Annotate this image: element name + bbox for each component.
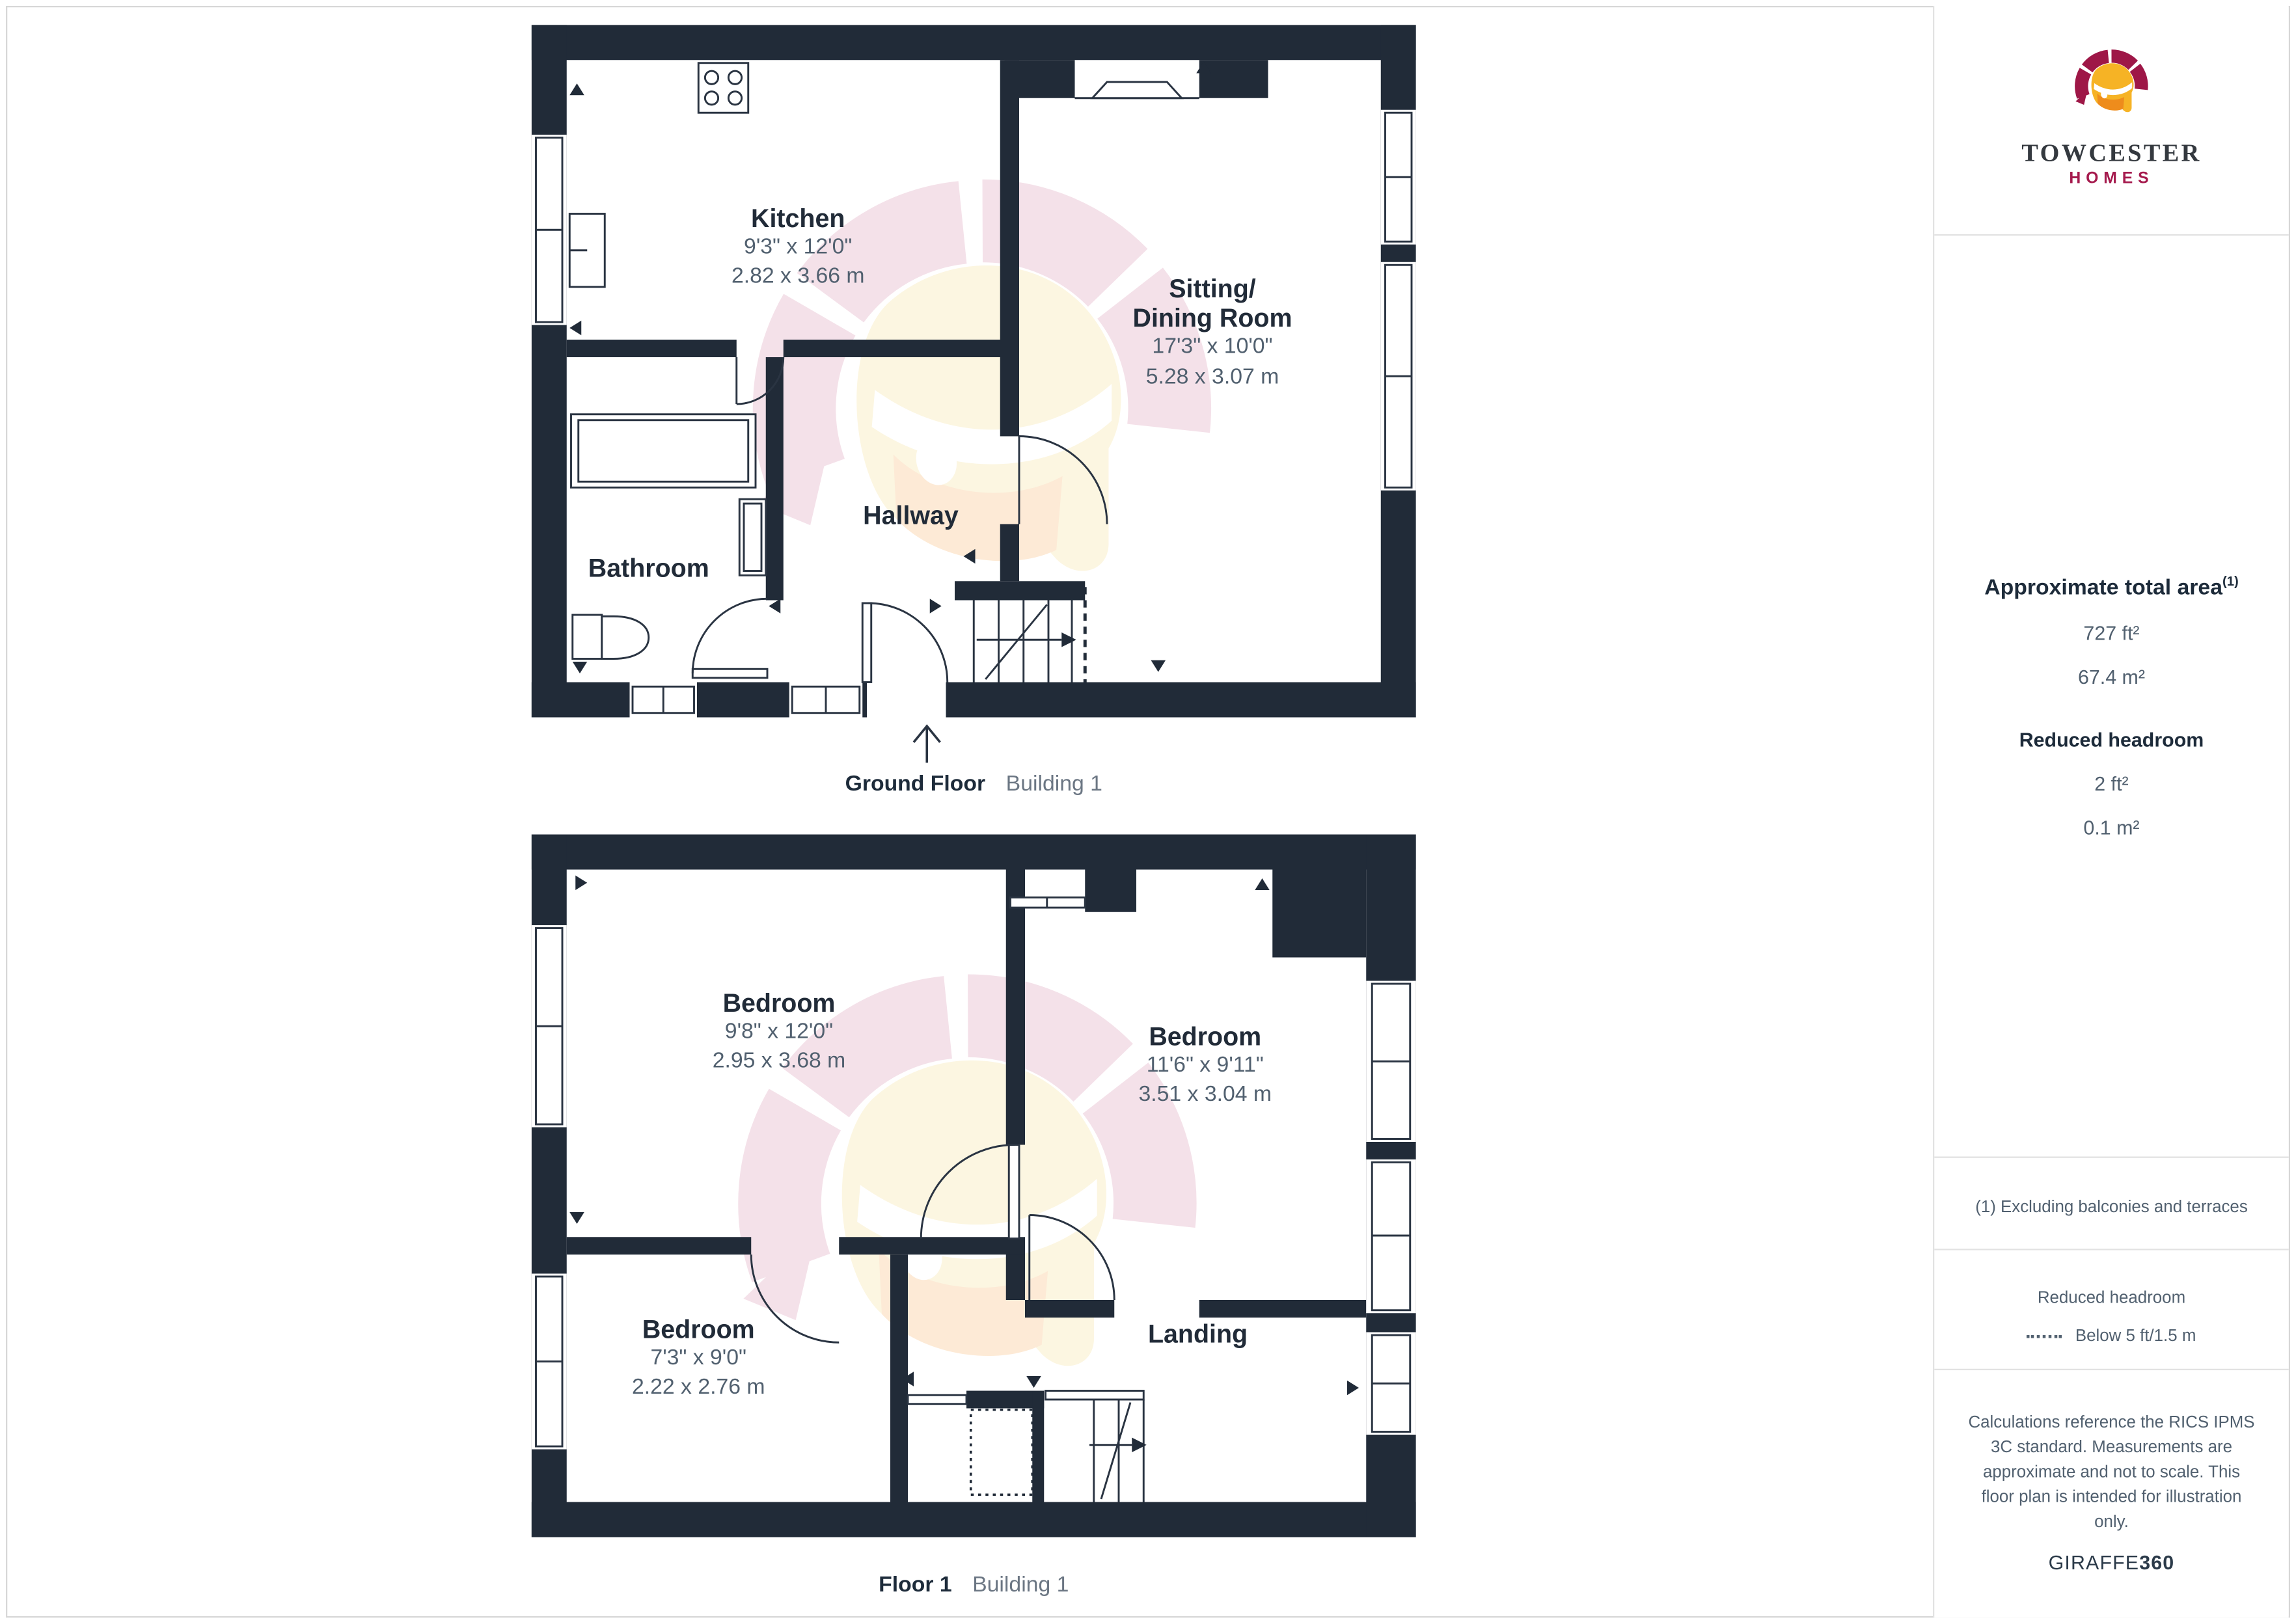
area-title: Approximate total area(1): [1949, 574, 2275, 601]
room-name: Landing: [1148, 1319, 1248, 1348]
room-name: Bedroom: [713, 988, 846, 1018]
room-name: Bedroom: [1138, 1022, 1272, 1051]
toilet-icon: [573, 615, 649, 659]
legend-label: Below 5 ft/1.5 m: [2075, 1328, 2196, 1346]
footnote-marker: (1): [2222, 574, 2239, 589]
brand-name: TOWCESTER: [1934, 139, 2289, 169]
floorplan-page: Kitchen 9'3" x 12'0" 2.82 x 3.66 m Sitti…: [0, 0, 2296, 1624]
room-dim-metric: 5.28 x 3.07 m: [1133, 362, 1292, 392]
brand-subname: HOMES: [1934, 170, 2289, 187]
room-dim-imperial: 11'6" x 9'11": [1138, 1051, 1272, 1081]
area-value-ft: 727 ft²: [1949, 622, 2275, 644]
ground-floor-drawing: [532, 25, 1416, 772]
agency-logo: TOWCESTER HOMES: [1934, 47, 2289, 187]
room-name: Bathroom: [588, 554, 709, 583]
room-label-bathroom: Bathroom: [588, 554, 709, 583]
dashed-line-swatch: [2027, 1335, 2062, 1338]
stairs-icon: [974, 587, 1085, 682]
headroom-value-m: 0.1 m²: [1949, 817, 2275, 839]
disclaimer-text: Calculations reference the RICS IPMS 3C …: [1967, 1411, 2257, 1536]
building-label: Building 1: [972, 1573, 1069, 1597]
room-label-sitting-dining: Sitting/ Dining Room 17'3" x 10'0" 5.28 …: [1133, 274, 1292, 392]
room-dim-metric: 2.82 x 3.66 m: [731, 263, 865, 293]
footnote: (1) Excluding balconies and terraces: [1955, 1199, 2269, 1217]
floor-1-caption: Floor 1Building 1: [532, 1573, 1416, 1597]
fireplace-icon: [1093, 82, 1182, 98]
room-dim-imperial: 9'8" x 12'0": [713, 1018, 846, 1048]
reduced-headroom-area: [971, 1410, 1033, 1495]
room-dim-metric: 3.51 x 3.04 m: [1138, 1081, 1272, 1111]
room-name: Sitting/: [1133, 274, 1292, 303]
room-label-bedroom-3: Bedroom 7'3" x 9'0" 2.22 x 2.76 m: [632, 1315, 765, 1403]
stairs-icon: [1089, 1400, 1147, 1502]
divider: [1934, 1369, 2289, 1370]
helmet-logo-icon: [2072, 47, 2152, 123]
room-dim-metric: 2.95 x 3.68 m: [713, 1048, 846, 1077]
floor-1-drawing: [532, 835, 1416, 1537]
area-value-m: 67.4 m²: [1949, 666, 2275, 688]
room-label-bedroom-2: Bedroom 11'6" x 9'11" 3.51 x 3.04 m: [1138, 1022, 1272, 1111]
legend: Reduced headroom Below 5 ft/1.5 m: [1949, 1290, 2275, 1346]
building-label: Building 1: [1006, 772, 1102, 796]
floor-label: Floor 1: [879, 1573, 952, 1597]
legend-title: Reduced headroom: [1949, 1290, 2275, 1307]
info-sidebar: TOWCESTER HOMES Approximate total area(1…: [1933, 6, 2289, 1618]
room-label-landing: Landing: [1148, 1319, 1248, 1348]
room-dim-metric: 2.22 x 2.76 m: [632, 1374, 765, 1403]
room-name-line2: Dining Room: [1133, 303, 1292, 332]
room-label-hallway: Hallway: [863, 501, 959, 530]
basin-icon: [739, 499, 766, 575]
cupboard-icon: [571, 414, 756, 488]
room-name: Bedroom: [632, 1315, 765, 1344]
headroom-title: Reduced headroom: [1949, 729, 2275, 751]
divider: [1934, 1249, 2289, 1250]
room-dim-imperial: 7'3" x 9'0": [632, 1344, 765, 1374]
room-label-kitchen: Kitchen 9'3" x 12'0" 2.82 x 3.66 m: [731, 204, 865, 292]
kitchen-unit-icon: [569, 214, 605, 288]
stove-icon: [698, 63, 748, 113]
room-label-bedroom-1: Bedroom 9'8" x 12'0" 2.95 x 3.68 m: [713, 988, 846, 1077]
divider: [1934, 1157, 2289, 1158]
room-name: Kitchen: [731, 204, 865, 233]
room-dim-imperial: 9'3" x 12'0": [731, 233, 865, 263]
giraffe360-logo: GIRAFFE360: [1934, 1552, 2289, 1574]
ground-floor-plan: Kitchen 9'3" x 12'0" 2.82 x 3.66 m Sitti…: [532, 25, 1416, 772]
headroom-value-ft: 2 ft²: [1949, 773, 2275, 795]
floor-label: Ground Floor: [845, 772, 986, 796]
floor-1-plan: Bedroom 9'8" x 12'0" 2.95 x 3.68 m Bedro…: [532, 835, 1416, 1537]
area-summary: Approximate total area(1) 727 ft² 67.4 m…: [1949, 574, 2275, 839]
room-name: Hallway: [863, 501, 959, 530]
room-dim-imperial: 17'3" x 10'0": [1133, 332, 1292, 362]
divider: [1934, 234, 2289, 236]
entrance-arrow-icon: [914, 726, 940, 763]
ground-floor-caption: Ground FloorBuilding 1: [532, 772, 1416, 796]
